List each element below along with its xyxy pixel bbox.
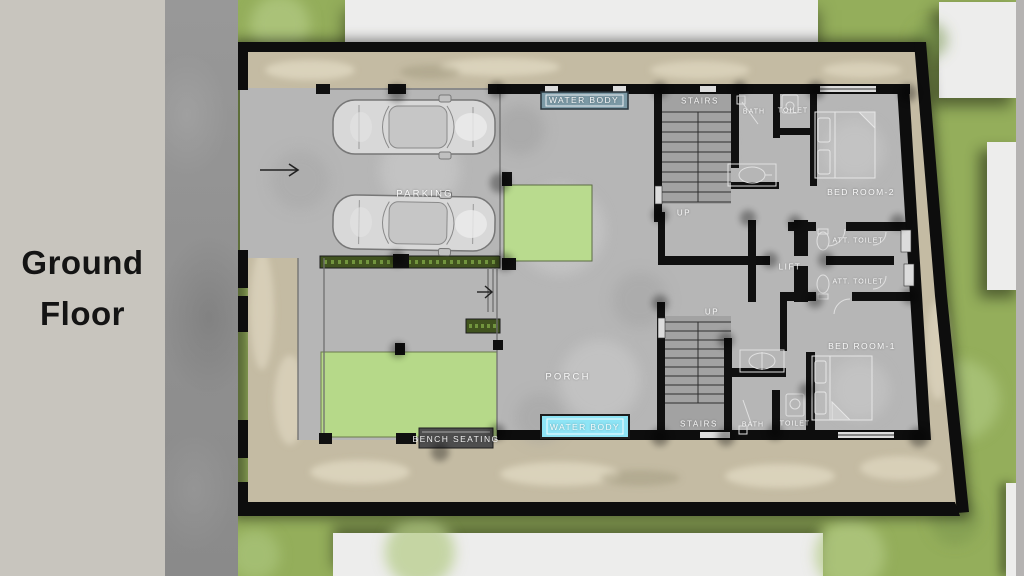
road-strip — [165, 0, 238, 576]
bed-icon-bedroom2 — [815, 112, 875, 178]
room-label-lift: LIFT — [779, 263, 802, 272]
label-up-bottom: UP — [705, 308, 719, 317]
room-label-att-toilet-top: ATT. TOILET — [832, 238, 883, 245]
feature-label-water-body-top: WATER BODY — [549, 95, 619, 105]
feature-label-bench-seating: BENCH SEATING — [413, 434, 500, 444]
room-label-att-toilet-bottom: ATT. TOILET — [832, 279, 883, 286]
room-label-toilet-bottom: TOILET — [780, 421, 810, 428]
lawn-patch-bottom — [321, 352, 497, 437]
room-label-bedroom2: BED ROOM-2 — [827, 187, 895, 197]
car-bottom-icon — [332, 190, 495, 257]
feature-label-water-body-bottom: WATER BODY — [550, 422, 620, 432]
title-panel: Ground Floor — [0, 0, 165, 576]
label-up-top: UP — [677, 209, 691, 218]
bed-icon-bedroom1 — [812, 356, 872, 420]
right-edge-strip — [1016, 0, 1024, 576]
page-title-line2: Floor — [0, 288, 165, 339]
room-label-porch: PORCH — [545, 372, 590, 383]
room-label-stairs-bottom: STAIRS — [680, 420, 718, 429]
page-title-line1: Ground — [0, 237, 165, 288]
slide: Ground Floor PARKING WATER BODY STAIRS B… — [0, 0, 1024, 576]
hedge-strip — [320, 256, 500, 268]
room-label-stairs-top: STAIRS — [681, 97, 719, 106]
page-title: Ground Floor — [0, 237, 165, 339]
walkway — [298, 258, 324, 440]
lawn-patch-middle — [504, 185, 592, 261]
car-top-icon — [333, 95, 495, 159]
room-label-bath-bottom: BATH — [742, 422, 764, 429]
room-label-bath-top: BATH — [743, 109, 765, 116]
room-label-parking: PARKING — [396, 189, 453, 200]
planter-box — [466, 319, 500, 333]
room-label-bedroom1: BED ROOM-1 — [828, 341, 896, 351]
room-label-toilet-top: TOILET — [778, 108, 808, 115]
